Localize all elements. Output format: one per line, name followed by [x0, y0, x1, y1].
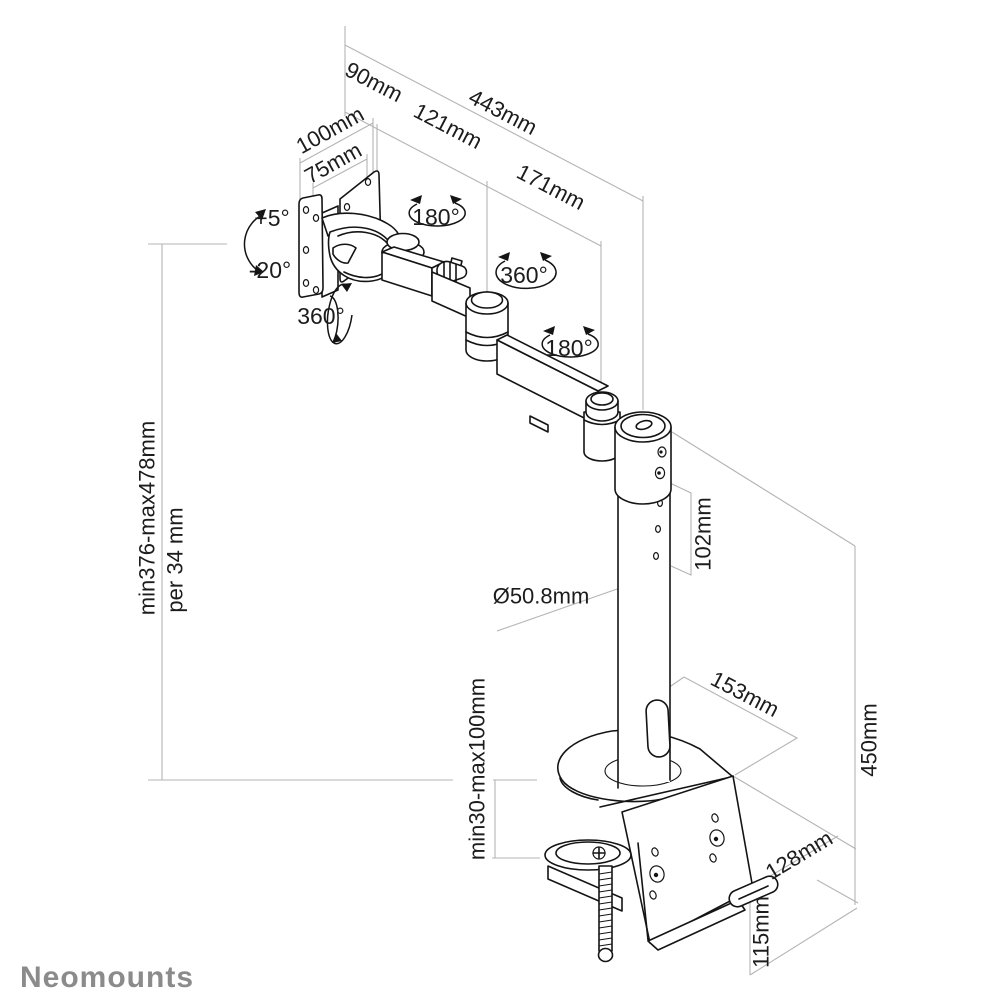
monitor-arm-diagram: 443mm 90mm 121mm 171mm 100mm 75mm min376…	[0, 0, 1004, 1004]
dim-line-443	[345, 45, 643, 201]
product-diagram: 443mm 90mm 121mm 171mm 100mm 75mm min376…	[0, 0, 1004, 1004]
dim-pole-diameter-label: Ø50.8mm	[493, 584, 590, 609]
ext-line-clamp-corner	[733, 776, 856, 849]
cable-slot	[646, 699, 671, 757]
dim-height-range-label: min376-max478mm	[135, 421, 160, 615]
brand-logo: Neomounts	[20, 961, 194, 994]
dim-clamp-depth-label: 128mm	[761, 825, 837, 884]
dim-base-depth-label: 153mm	[707, 666, 784, 722]
dim-pole-height-label: 450mm	[857, 703, 882, 776]
vesa-swivel-label: 360°	[297, 303, 345, 329]
tilt-down-label: -20°	[249, 257, 291, 283]
dimension-labels: 443mm 90mm 121mm 171mm 100mm 75mm min376…	[135, 57, 882, 968]
arm-joint3-label: 180°	[545, 335, 593, 361]
pole-top-cap	[615, 412, 671, 504]
cable-clip	[530, 416, 548, 432]
pole	[618, 492, 671, 788]
dim-pole-holes-label: 102mm	[691, 497, 716, 570]
joint1-arrow-left-icon	[410, 195, 422, 204]
screw-tip	[599, 949, 613, 962]
tilt-up-label: +5°	[254, 205, 289, 231]
joint2-arrow-left-icon	[498, 252, 510, 261]
dim-line-102	[670, 483, 691, 575]
dimension-lines	[148, 26, 858, 975]
vesa-plate-front	[299, 195, 323, 297]
dim-height-step-label: per 34 mm	[163, 507, 188, 612]
dim-vesa-depth-label: 90mm	[341, 57, 407, 107]
arm-joint2-label: 360°	[500, 262, 548, 288]
clamp-screw	[545, 840, 631, 962]
dim-clamp-opening-label: min30-max100mm	[465, 678, 490, 860]
ext-line-450-bottom-a	[817, 880, 858, 903]
dim-clamp-height-label: 115mm	[749, 896, 774, 968]
swivel-arrow-top-icon	[341, 283, 352, 292]
arm-joint1-label: 180°	[412, 204, 460, 230]
joint3-arrow-left-icon	[543, 326, 555, 335]
